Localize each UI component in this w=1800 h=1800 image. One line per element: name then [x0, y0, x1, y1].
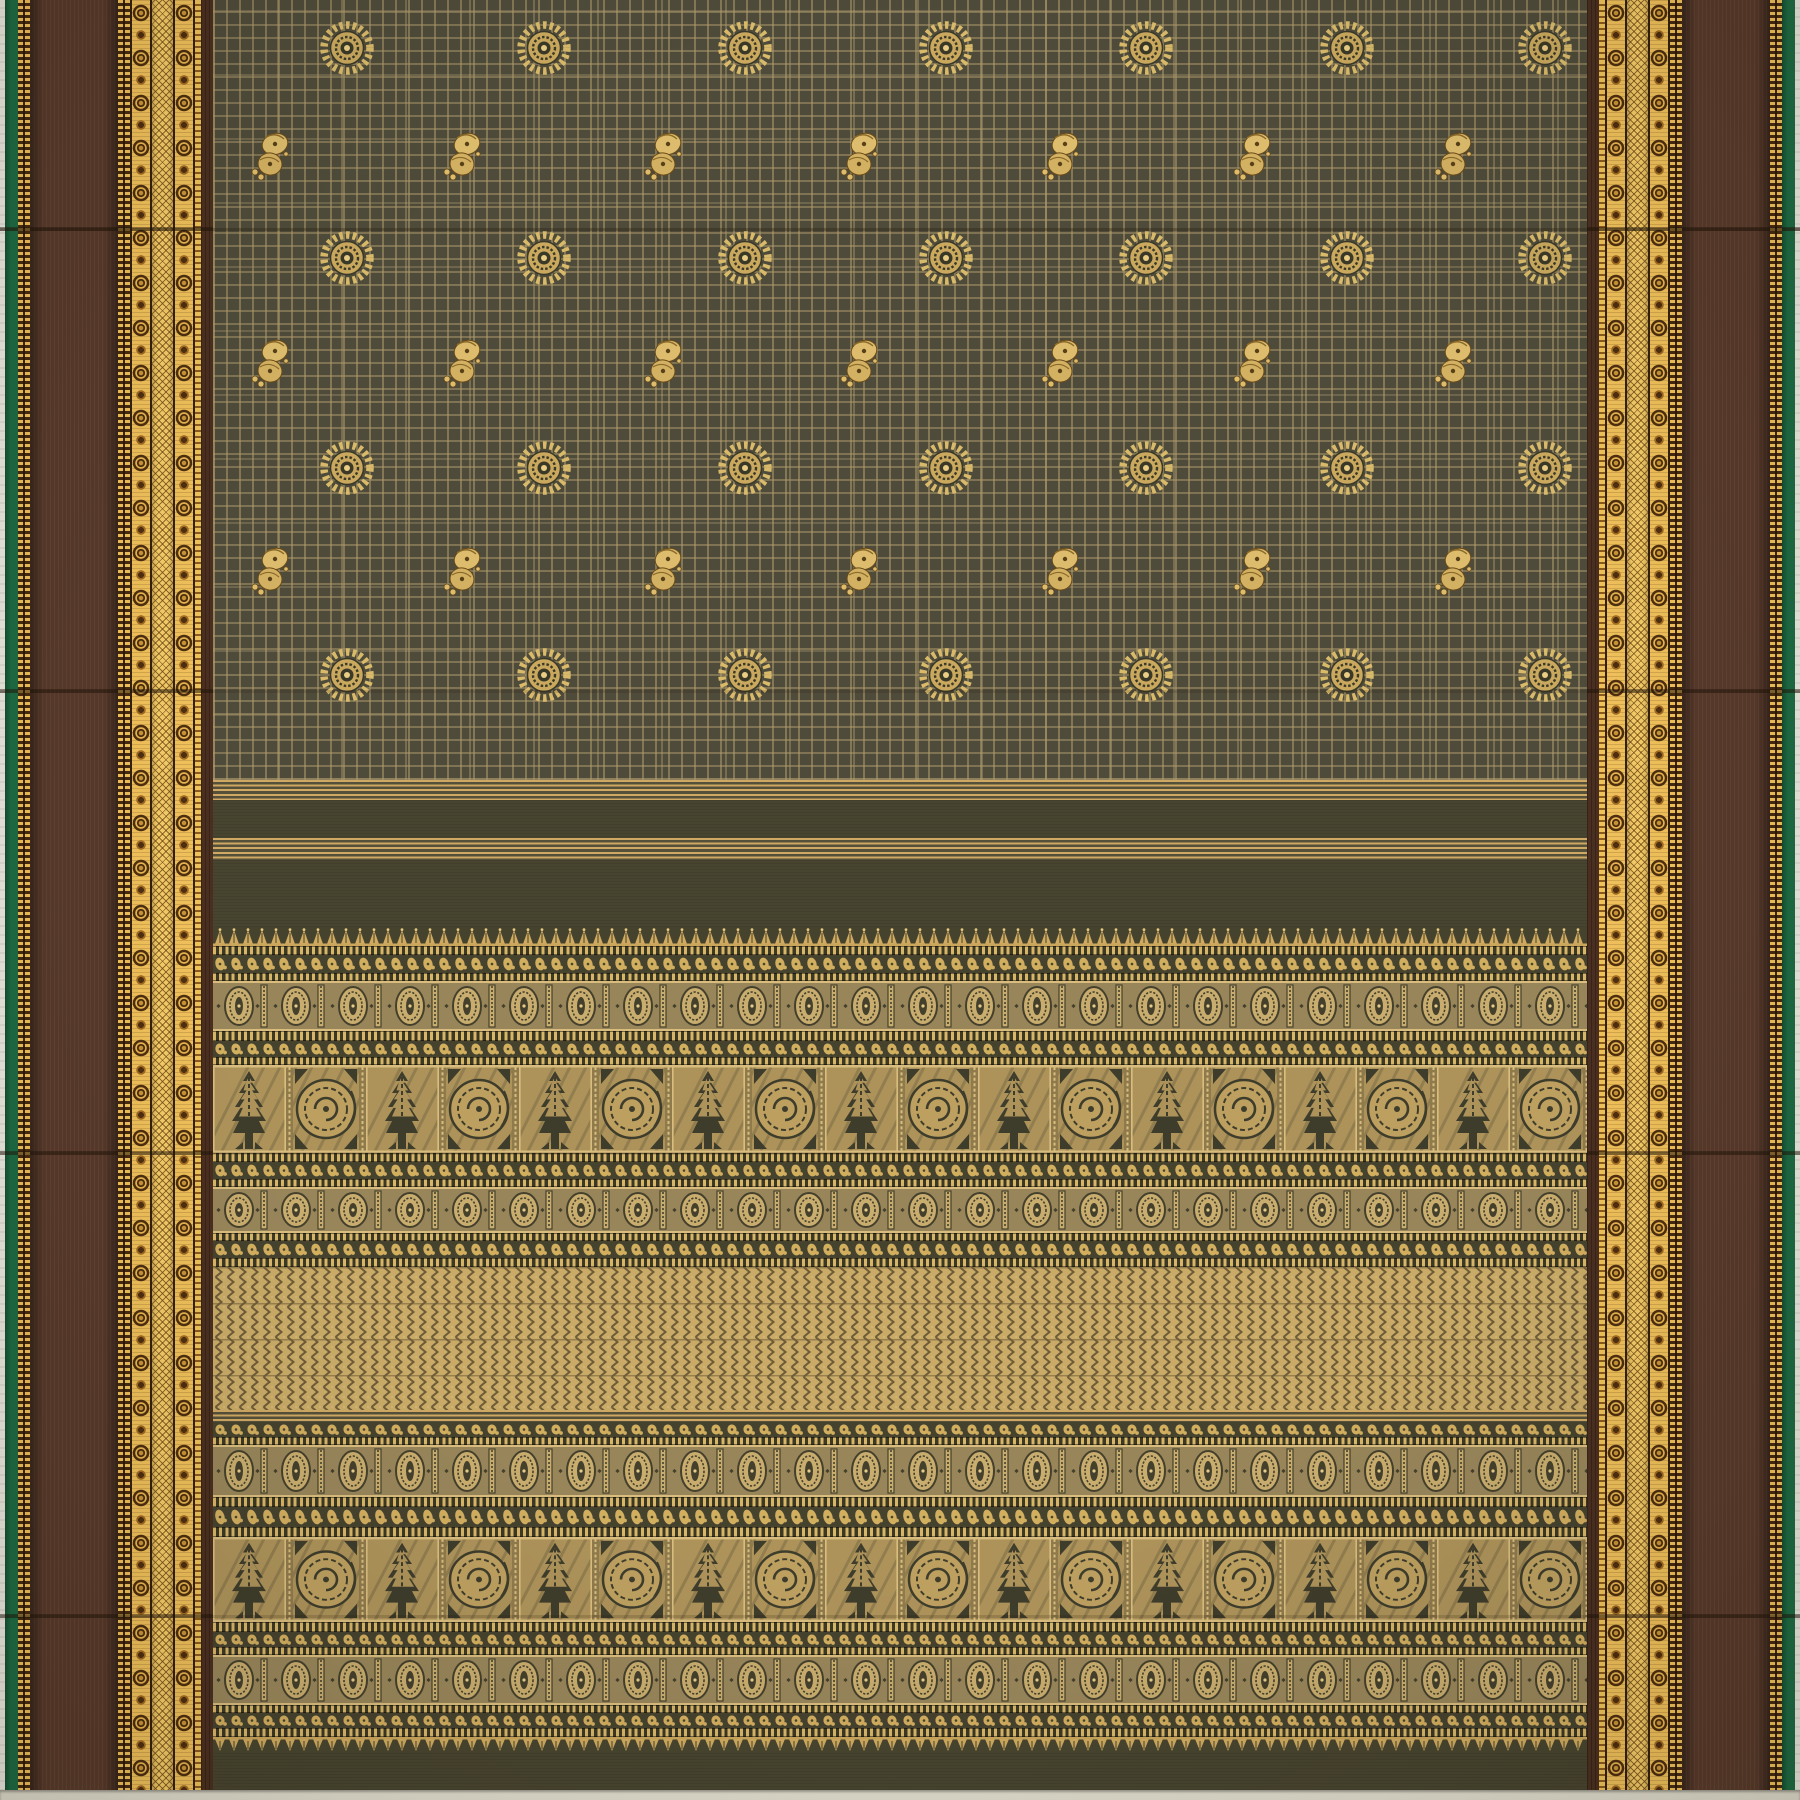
pallu-band-dot-line — [213, 1497, 1587, 1507]
comma-row-pattern — [213, 1041, 1587, 1057]
pallu-band-dot-line — [213, 1527, 1587, 1537]
fold-crease-right-border — [1587, 689, 1800, 693]
comma-row-pattern — [213, 1507, 1587, 1527]
pallu-band-stripe-gold — [213, 838, 1587, 860]
comma-row-pattern — [213, 1632, 1587, 1647]
temple-spikes-up-pattern — [213, 927, 1587, 946]
border-strip-brown — [1682, 0, 1770, 1800]
pallu-band-dot-line — [213, 1647, 1587, 1655]
herringbone-weft-lines — [213, 1267, 1587, 1410]
comma-row-pattern-svg — [213, 1507, 1587, 1527]
border-strip-green — [5, 0, 18, 1800]
border-strip-gold-dot — [18, 0, 30, 1800]
pallu-band-dot-line — [213, 1258, 1587, 1267]
border-strip-gold-dot — [1670, 0, 1682, 1800]
pallu-band-comma-row — [213, 1632, 1587, 1647]
temple-spikes-down-pattern-svg — [213, 1737, 1587, 1753]
border-strip-green — [1782, 0, 1795, 1800]
comma-row-pattern — [213, 1162, 1587, 1179]
comma-row-pattern-svg — [213, 1162, 1587, 1179]
pallu-band-medallion-band — [213, 981, 1587, 1031]
border-strip-ring-band — [130, 0, 152, 1800]
medallion-band-pattern — [213, 1445, 1587, 1497]
pallu-band-plain — [213, 1753, 1587, 1790]
medallion-band-pattern-svg — [213, 1655, 1587, 1705]
comma-row-pattern — [213, 955, 1587, 973]
pallu-band-dot-line — [213, 1728, 1587, 1737]
border-strip-mesh — [152, 0, 173, 1800]
comma-row-pattern — [213, 1241, 1587, 1258]
pallu-band-comma-row — [213, 955, 1587, 973]
comma-row-pattern-svg — [213, 1422, 1587, 1437]
pallu-band-dot-line — [213, 1031, 1587, 1041]
pallu-band-dot-line — [213, 1437, 1587, 1445]
pallu-band-medallion-band — [213, 1187, 1587, 1233]
pallu-band-dot-line — [213, 1057, 1587, 1065]
pallu-band-dot-line — [213, 973, 1587, 981]
border-strip-ring-band — [1648, 0, 1670, 1800]
fold-crease-left-border — [0, 227, 213, 231]
fold-crease-center — [0, 690, 1800, 693]
saree-flatlay-photo — [0, 0, 1800, 1800]
comma-row-pattern — [213, 1713, 1587, 1728]
pallu-band-herringbone — [213, 1267, 1587, 1410]
medallion-band-pattern-svg — [213, 1445, 1587, 1497]
tree-peacock-row-pattern — [213, 1065, 1587, 1153]
right-border — [1587, 0, 1800, 1800]
pallu-band-dot-line — [213, 1179, 1587, 1187]
fold-crease-center — [0, 1152, 1800, 1155]
pallu-band-medallion-band — [213, 1655, 1587, 1705]
tree-peacock-row-pattern-svg — [213, 1065, 1587, 1153]
pallu-band-comma-row — [213, 1507, 1587, 1527]
border-strip-ring-band — [1605, 0, 1627, 1800]
bottom-selvage — [0, 1790, 1800, 1800]
fold-crease-left-border — [0, 1614, 213, 1618]
tree-peacock-row-pattern-svg — [213, 1537, 1587, 1622]
pallu-band-comma-row — [213, 1162, 1587, 1179]
medallion-band-pattern-svg — [213, 981, 1587, 1031]
comma-row-pattern-svg — [213, 1713, 1587, 1728]
pallu-band-comma-row — [213, 1041, 1587, 1057]
pallu-band-medallion-band — [213, 1445, 1587, 1497]
comma-row-pattern-svg — [213, 1041, 1587, 1057]
fold-crease-left-border — [0, 1151, 213, 1155]
pallu-band-stripe-gold — [213, 1410, 1587, 1422]
pallu-band-spikes-down — [213, 1737, 1587, 1753]
pallu-band-comma-row — [213, 1422, 1587, 1437]
fold-crease-center — [0, 1615, 1800, 1618]
pallu-band-comma-row — [213, 1713, 1587, 1728]
comma-row-pattern-svg — [213, 1632, 1587, 1647]
medallion-band-pattern — [213, 1655, 1587, 1705]
comma-row-pattern-svg — [213, 1241, 1587, 1258]
left-border — [0, 0, 213, 1800]
border-strip-brown — [30, 0, 118, 1800]
border-strip-gold-dot — [118, 0, 130, 1800]
fold-crease-center — [0, 228, 1800, 231]
pallu-section — [213, 0, 1587, 1800]
temple-spikes-up-pattern-svg — [213, 927, 1587, 946]
comma-row-pattern — [213, 1422, 1587, 1437]
fold-crease-right-border — [1587, 1151, 1800, 1155]
pallu-band-dot-line — [213, 1233, 1587, 1241]
border-strip-brown-inner — [201, 0, 213, 1800]
medallion-band-pattern — [213, 981, 1587, 1031]
pallu-band-dot-line — [213, 1622, 1587, 1632]
fold-crease-left-border — [0, 689, 213, 693]
border-strip-gold-dot — [1770, 0, 1782, 1800]
border-strip-brown-inner — [1587, 0, 1599, 1800]
border-strip-mesh — [1627, 0, 1648, 1800]
pallu-band-comma-row — [213, 1241, 1587, 1258]
pallu-band-large-motif-row — [213, 1065, 1587, 1153]
tree-peacock-row-pattern — [213, 1537, 1587, 1622]
pallu-band-large-motif-row — [213, 1537, 1587, 1622]
temple-spikes-down-pattern — [213, 1737, 1587, 1753]
border-strip-selvage — [1795, 0, 1800, 1800]
medallion-band-pattern-svg — [213, 1187, 1587, 1233]
pallu-band-stripe-gold — [213, 780, 1587, 800]
pallu-band-dot-line — [213, 1705, 1587, 1713]
fold-crease-right-border — [1587, 1614, 1800, 1618]
pallu-band-spikes-up — [213, 927, 1587, 946]
pallu-band-plain — [213, 800, 1587, 838]
fold-crease-right-border — [1587, 227, 1800, 231]
pallu-band-dot-line — [213, 946, 1587, 955]
pallu-band-plain — [213, 860, 1587, 927]
medallion-band-pattern — [213, 1187, 1587, 1233]
comma-row-pattern-svg — [213, 955, 1587, 973]
border-strip-ring-band — [173, 0, 195, 1800]
